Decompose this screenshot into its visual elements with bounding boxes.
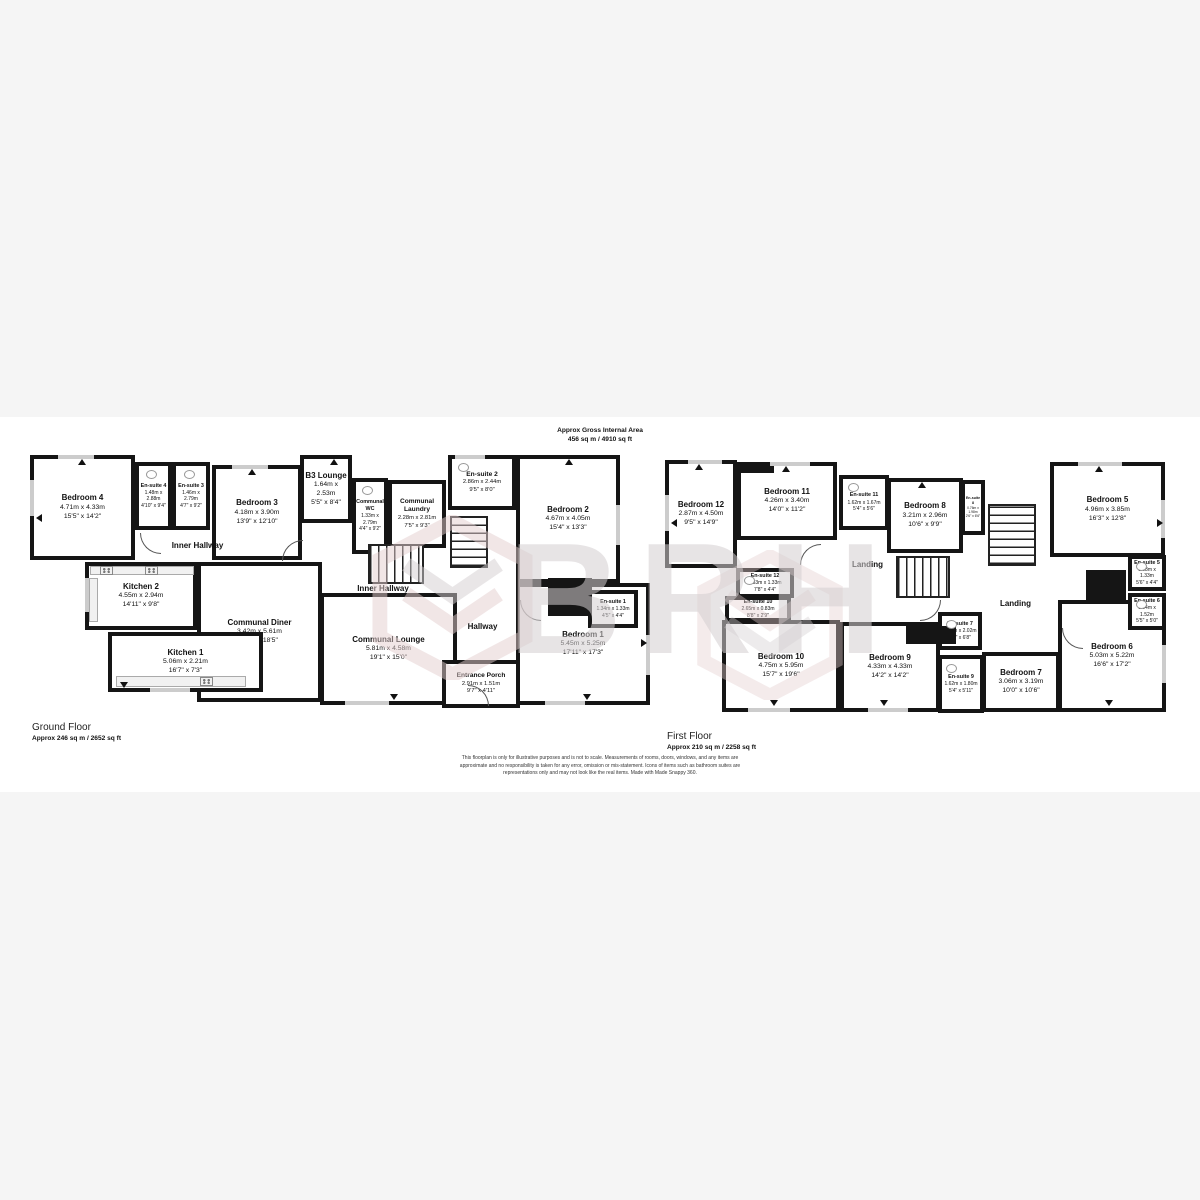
room-name: Entrance Porch xyxy=(457,672,506,681)
room-name: Bedroom 10 xyxy=(758,652,804,662)
chimney-block xyxy=(548,578,592,616)
header-area: 456 sq m / 4910 sq ft xyxy=(495,436,705,445)
floor-title: First Floor xyxy=(667,731,756,742)
room-dim-metric: 4.55m x 2.94m xyxy=(119,592,164,601)
room-dim-imperial: 8'8" x 2'9" xyxy=(741,613,774,620)
room-name: En-suite 11 xyxy=(847,492,880,499)
room-label: Bedroom 83.21m x 2.96m10'6" x 9'9" xyxy=(903,501,948,529)
room-ensuite-6: En-suite 61.64m x 1.52m5'5" x 5'0" xyxy=(1128,593,1166,630)
room-dim-imperial: 9'5" x 14'9" xyxy=(678,519,724,528)
room-dim-imperial: 14'2" x 14'2" xyxy=(868,672,913,681)
room-ensuite-1: En-suite 11.34m x 1.33m4'5" x 4'4" xyxy=(588,590,638,628)
toilet-icon xyxy=(1136,600,1147,609)
room-dim-metric: 2.87m x 4.50m xyxy=(678,510,724,519)
toilet-icon xyxy=(1136,562,1147,571)
room-bedroom-7: Bedroom 73.06m x 3.19m10'0" x 10'6" xyxy=(982,652,1060,712)
window xyxy=(770,462,810,466)
toilet-icon xyxy=(362,486,373,495)
window xyxy=(150,688,190,692)
wall-marker-icon xyxy=(695,464,703,470)
room-b3-lounge: B3 Lounge1.64m x 2.53m5'5" x 8'4" xyxy=(300,455,352,523)
first-floor-label: First Floor Approx 210 sq m / 2258 sq ft xyxy=(667,731,756,751)
room-ensuite-8: En-suite 80.76m x 1.98m2'6" x 6'6" xyxy=(961,480,985,535)
wall-marker-icon xyxy=(671,519,677,527)
room-name: En-suite 3 xyxy=(176,483,206,490)
room-dim-metric: 1.46m x 2.79m xyxy=(176,490,206,503)
label-inner-hallway-mid: Inner Hallway xyxy=(338,584,428,593)
room-name: Bedroom 12 xyxy=(678,500,724,510)
room-dim-metric: 2.65m x 0.83m xyxy=(741,606,774,613)
room-label: Bedroom 54.96m x 3.85m16'3" x 12'8" xyxy=(1085,495,1130,523)
window xyxy=(345,701,389,705)
wall-marker-icon xyxy=(770,700,778,706)
room-dim-metric: 4.33m x 4.33m xyxy=(868,663,913,672)
wall-marker-icon xyxy=(1095,466,1103,472)
room-name: Bedroom 1 xyxy=(561,630,606,640)
floorplan-page: { "header": { "line1": "Approx Gross Int… xyxy=(0,0,1200,1200)
room-dim-imperial: 7'5" x 9'3" xyxy=(392,523,442,531)
window xyxy=(1162,645,1166,683)
room-dim-metric: 3.06m x 3.19m xyxy=(999,678,1044,687)
room-dim-imperial: 10'6" x 9'9" xyxy=(903,521,948,530)
room-dim-imperial: 2'6" x 6'6" xyxy=(965,514,981,518)
room-label: Communal Laundry2.28m x 2.81m7'5" x 9'3" xyxy=(392,498,442,530)
room-dim-metric: 5.03m x 5.22m xyxy=(1090,652,1135,661)
ground-floor-label: Ground Floor Approx 246 sq m / 2652 sq f… xyxy=(32,722,121,742)
wall-marker-icon xyxy=(120,682,128,688)
kitchen-counter xyxy=(89,578,98,622)
wall-marker-icon xyxy=(36,514,42,522)
gross-internal-area-header: Approx Gross Internal Area 456 sq m / 49… xyxy=(495,427,705,445)
room-dim-metric: 3.21m x 2.96m xyxy=(903,512,948,521)
room-name: Communal Diner xyxy=(227,618,291,628)
room-name: Bedroom 4 xyxy=(60,493,105,503)
room-dim-metric: 1.48m x 2.88m xyxy=(139,490,168,503)
room-dim-imperial: 7'8" x 4'4" xyxy=(748,587,781,594)
window xyxy=(30,480,34,516)
hob-icon xyxy=(100,566,113,575)
room-dim-imperial: 15'5" x 14'2" xyxy=(60,513,105,522)
hob-icon xyxy=(145,566,158,575)
room-name: Bedroom 11 xyxy=(764,487,810,497)
room-bedroom-2: Bedroom 24.67m x 4.05m15'4" x 13'3" xyxy=(516,455,620,583)
chimney-block xyxy=(740,463,774,473)
letterbox-bottom xyxy=(0,792,1200,1200)
wall-marker-icon xyxy=(1105,700,1113,706)
toilet-icon xyxy=(146,470,157,479)
room-dim-imperial: 15'7" x 19'6" xyxy=(758,671,804,680)
room-dim-metric: 1.62m x 1.80m xyxy=(944,681,977,688)
room-bedroom-12: Bedroom 122.87m x 4.50m9'5" x 14'9" xyxy=(665,460,737,568)
room-label: Bedroom 24.67m x 4.05m15'4" x 13'3" xyxy=(546,505,591,533)
room-ensuite-11: En-suite 111.62m x 1.67m5'4" x 5'6" xyxy=(839,475,889,530)
room-dim-metric: 5.81m x 4.58m xyxy=(352,645,424,654)
room-name: En-suite 10 xyxy=(741,599,774,606)
room-dim-metric: 4.18m x 3.90m xyxy=(235,509,280,518)
room-dim-imperial: 19'1" x 15'0" xyxy=(352,654,424,663)
room-label: Bedroom 114.26m x 3.40m14'0" x 11'2" xyxy=(764,487,810,515)
label-landing-left: Landing xyxy=(840,560,895,569)
room-label: Bedroom 94.33m x 4.33m14'2" x 14'2" xyxy=(868,653,913,681)
room-dim-imperial: 13'9" x 12'10" xyxy=(235,518,280,527)
room-dim-imperial: 4'7" x 9'2" xyxy=(176,503,206,510)
room-label: Bedroom 65.03m x 5.22m16'6" x 17'2" xyxy=(1090,642,1135,670)
room-label: En-suite 22.86m x 2.44m9'5" x 8'0" xyxy=(463,471,501,495)
room-label: En-suite 11.34m x 1.33m4'5" x 4'4" xyxy=(596,599,629,619)
room-name: En-suite 4 xyxy=(139,483,168,490)
disclaimer-text: This floorplan is only for illustrative … xyxy=(452,755,748,778)
room-label: Bedroom 34.18m x 3.90m13'9" x 12'10" xyxy=(235,498,280,526)
room-dim-metric: 1.64m x 2.53m xyxy=(304,481,348,499)
room-bedroom-11: Bedroom 114.26m x 3.40m14'0" x 11'2" xyxy=(737,462,837,540)
room-dim-imperial: 5'4" x 5'11" xyxy=(944,688,977,695)
wall-marker-icon xyxy=(918,482,926,488)
kitchen-counter xyxy=(116,676,246,687)
wall-marker-icon xyxy=(880,700,888,706)
wall-marker-icon xyxy=(782,466,790,472)
room-name: En-suite 1 xyxy=(596,599,629,606)
room-name: Communal WC xyxy=(356,499,384,513)
room-bedroom-5: Bedroom 54.96m x 3.85m16'3" x 12'8" xyxy=(1050,462,1165,557)
room-dim-metric: 4.75m x 5.95m xyxy=(758,662,804,671)
room-name: Bedroom 6 xyxy=(1090,642,1135,652)
room-ensuite-2: En-suite 22.86m x 2.44m9'5" x 8'0" xyxy=(448,455,516,510)
room-dim-metric: 1.33m x 2.79m xyxy=(356,513,384,526)
toilet-icon xyxy=(458,463,469,472)
room-name: Communal Lounge xyxy=(352,635,424,645)
toilet-icon xyxy=(848,483,859,492)
room-label: B3 Lounge1.64m x 2.53m5'5" x 8'4" xyxy=(304,471,348,508)
room-dim-imperial: 16'6" x 17'2" xyxy=(1090,661,1135,670)
window xyxy=(616,505,620,545)
room-dim-metric: 4.71m x 4.33m xyxy=(60,504,105,513)
room-name: En-suite 8 xyxy=(965,496,981,505)
room-label: En-suite 80.76m x 1.98m2'6" x 6'6" xyxy=(965,496,981,518)
room-dim-imperial: 16'3" x 12'8" xyxy=(1085,515,1130,524)
room-name: Bedroom 8 xyxy=(903,501,948,511)
room-label: En-suite 31.46m x 2.79m4'7" x 9'2" xyxy=(176,483,206,510)
room-dim-imperial: 14'0" x 11'2" xyxy=(764,506,810,515)
room-bedroom-8: Bedroom 83.21m x 2.96m10'6" x 9'9" xyxy=(887,478,963,553)
room-dim-imperial: 17'11" x 17'3" xyxy=(561,649,606,658)
label-inner-hallway-top: Inner Hallway xyxy=(150,541,245,550)
wall-marker-icon xyxy=(248,469,256,475)
room-dim-imperial: 5'4" x 5'6" xyxy=(847,506,880,513)
hob-icon xyxy=(200,677,213,686)
room-dim-metric: 4.96m x 3.85m xyxy=(1085,506,1130,515)
room-label: Bedroom 104.75m x 5.95m15'7" x 19'6" xyxy=(758,652,804,680)
room-dim-imperial: 9'5" x 8'0" xyxy=(463,487,501,495)
room-name: Bedroom 7 xyxy=(999,668,1044,678)
window xyxy=(455,455,485,459)
letterbox-top xyxy=(0,0,1200,417)
room-label: En-suite 102.65m x 0.83m8'8" x 2'9" xyxy=(741,599,774,619)
toilet-icon xyxy=(184,470,195,479)
label-hallway: Hallway xyxy=(455,622,510,631)
label-landing-right: Landing xyxy=(988,599,1043,608)
room-dim-imperial: 5'5" x 8'4" xyxy=(304,499,348,508)
window xyxy=(688,460,722,464)
room-dim-metric: 5.45m x 5.25m xyxy=(561,640,606,649)
room-dim-metric: 4.26m x 3.40m xyxy=(764,497,810,506)
room-ensuite-9: En-suite 91.62m x 1.80m5'4" x 5'11" xyxy=(938,655,984,713)
staircase xyxy=(368,544,424,584)
room-label: Kitchen 15.06m x 2.21m16'7" x 7'3" xyxy=(163,648,208,676)
wall-marker-icon xyxy=(390,694,398,700)
room-dim-metric: 4.67m x 4.05m xyxy=(546,515,591,524)
room-ensuite-10: En-suite 102.65m x 0.83m8'8" x 2'9" xyxy=(725,596,791,622)
wall-marker-icon xyxy=(641,639,647,647)
room-dim-imperial: 10'0" x 10'6" xyxy=(999,687,1044,696)
room-dim-metric: 2.28m x 2.81m xyxy=(392,515,442,523)
header-title: Approx Gross Internal Area xyxy=(495,427,705,436)
room-name: B3 Lounge xyxy=(304,471,348,481)
room-dim-imperial: 5'5" x 5'0" xyxy=(1132,618,1162,625)
window xyxy=(665,495,669,531)
wall-marker-icon xyxy=(330,459,338,465)
wall-marker-icon xyxy=(583,694,591,700)
room-name: Kitchen 1 xyxy=(163,648,208,658)
room-communal-laundry: Communal Laundry2.28m x 2.81m7'5" x 9'3" xyxy=(388,480,446,548)
staircase xyxy=(988,504,1036,566)
room-label: En-suite 41.48m x 2.88m4'10" x 9'4" xyxy=(139,483,168,510)
staircase xyxy=(450,516,488,568)
room-label: Bedroom 44.71m x 4.33m15'5" x 14'2" xyxy=(60,493,105,521)
room-name: Bedroom 9 xyxy=(868,653,913,663)
room-dim-imperial: 4'5" x 4'4" xyxy=(596,613,629,620)
room-label: Bedroom 73.06m x 3.19m10'0" x 10'6" xyxy=(999,668,1044,696)
room-name: Communal Laundry xyxy=(392,498,442,515)
room-name: En-suite 9 xyxy=(944,674,977,681)
room-label: Bedroom 122.87m x 4.50m9'5" x 14'9" xyxy=(678,500,724,528)
room-dim-imperial: 4'4" x 9'2" xyxy=(356,526,384,533)
toilet-icon xyxy=(946,620,957,629)
room-dim-metric: 5.06m x 2.21m xyxy=(163,658,208,667)
room-dim-imperial: 14'11" x 9'8" xyxy=(119,601,164,610)
toilet-icon xyxy=(946,664,957,673)
room-dim-metric: 1.34m x 1.33m xyxy=(596,606,629,613)
staircase xyxy=(896,556,950,598)
room-dim-metric: 2.86m x 2.44m xyxy=(463,479,501,487)
room-name: Bedroom 5 xyxy=(1085,495,1130,505)
floor-area: Approx 210 sq m / 2258 sq ft xyxy=(667,744,756,751)
room-name: Bedroom 2 xyxy=(546,505,591,515)
room-dim-imperial: 15'4" x 13'3" xyxy=(546,524,591,533)
room-dim-metric: 2.91m x 1.51m xyxy=(457,681,506,689)
room-ensuite-5: En-suite 51.68m x 1.33m5'6" x 4'4" xyxy=(1128,555,1166,591)
room-dim-imperial: 5'6" x 4'4" xyxy=(1132,580,1162,587)
room-label: Kitchen 24.55m x 2.94m14'11" x 9'8" xyxy=(119,582,164,610)
room-label: Communal WC1.33m x 2.79m4'4" x 9'2" xyxy=(356,499,384,533)
room-name: En-suite 2 xyxy=(463,471,501,480)
room-dim-imperial: 16'7" x 7'3" xyxy=(163,667,208,676)
wall-marker-icon xyxy=(78,459,86,465)
room-dim-metric: 0.76m x 1.98m xyxy=(965,506,981,515)
room-label: Bedroom 15.45m x 5.25m17'11" x 17'3" xyxy=(561,630,606,658)
window xyxy=(748,708,790,712)
room-bedroom-4: Bedroom 44.71m x 4.33m15'5" x 14'2" xyxy=(30,455,135,560)
room-bedroom-10: Bedroom 104.75m x 5.95m15'7" x 19'6" xyxy=(722,620,840,712)
room-label: En-suite 91.62m x 1.80m5'4" x 5'11" xyxy=(944,674,977,694)
chimney-block xyxy=(1086,570,1126,604)
window xyxy=(545,701,585,705)
room-dim-imperial: 4'10" x 9'4" xyxy=(139,503,168,510)
floor-title: Ground Floor xyxy=(32,722,121,733)
room-communal-lounge: Communal Lounge5.81m x 4.58m19'1" x 15'0… xyxy=(320,593,457,705)
window xyxy=(58,455,94,459)
floor-area: Approx 246 sq m / 2652 sq ft xyxy=(32,735,121,742)
room-name: Kitchen 2 xyxy=(119,582,164,592)
wall-marker-icon xyxy=(1157,519,1163,527)
window xyxy=(868,708,908,712)
room-label: Communal Lounge5.81m x 4.58m19'1" x 15'0… xyxy=(352,635,424,663)
wall-marker-icon xyxy=(565,459,573,465)
room-label: En-suite 111.62m x 1.67m5'4" x 5'6" xyxy=(847,492,880,512)
room-name: Bedroom 3 xyxy=(235,498,280,508)
toilet-icon xyxy=(744,576,755,585)
